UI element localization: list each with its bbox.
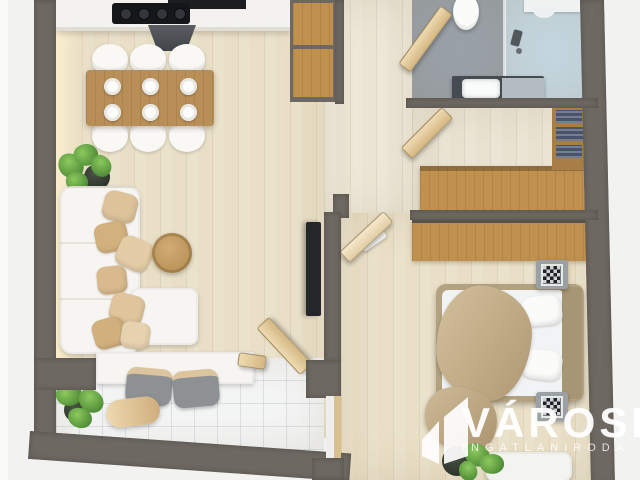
watermark-tagline: INGATLANIRODA [462, 442, 629, 454]
pantry-cabinet [290, 0, 336, 102]
place-setting [104, 78, 121, 95]
place-setting [104, 104, 121, 121]
wall-balcony-stub [34, 358, 96, 390]
bar-stool [171, 368, 220, 409]
tv [306, 222, 321, 316]
watermark: VÁROSI INGATLANIRODA [416, 394, 640, 474]
wall-hall-left [335, 0, 344, 104]
burner-icon [120, 8, 132, 20]
bedroom-wardrobe [412, 220, 598, 261]
pantry-door-panel [293, 3, 333, 45]
place-setting [142, 104, 159, 121]
burner-icon [156, 8, 168, 20]
watermark-brand: VÁROSI [462, 402, 640, 444]
place-setting [180, 104, 197, 121]
throw-pillow [96, 265, 129, 296]
folded-clothes [556, 127, 584, 141]
soap-dish [533, 2, 555, 18]
art-print [541, 264, 563, 286]
vanity-side [502, 78, 544, 98]
window-frame-wood [334, 396, 341, 460]
wall-mid-block [306, 360, 341, 398]
wall-tv-divider [324, 212, 341, 362]
place-setting [142, 78, 159, 95]
sink-basin [462, 79, 500, 98]
throw-pillow [119, 320, 151, 351]
nightstand [536, 260, 568, 289]
potted-plant [56, 384, 114, 434]
window-frame [326, 396, 334, 460]
pantry-door-panel [293, 49, 333, 97]
cooktop [112, 3, 190, 24]
headboard [562, 287, 582, 399]
shower-glass-screen [503, 0, 506, 76]
burner-icon [174, 8, 186, 20]
floor-plan-render: VÁROSI INGATLANIRODA [0, 0, 640, 480]
wall-bottom-right-stub [312, 458, 344, 480]
burner-icon [138, 8, 150, 20]
coffee-table [152, 233, 192, 273]
wall-bathroom-south [406, 98, 598, 108]
place-setting [180, 78, 197, 95]
shower-drain [516, 48, 522, 54]
wall-closet-south [410, 210, 598, 220]
folded-clothes [556, 110, 582, 123]
folded-clothes [556, 145, 582, 158]
